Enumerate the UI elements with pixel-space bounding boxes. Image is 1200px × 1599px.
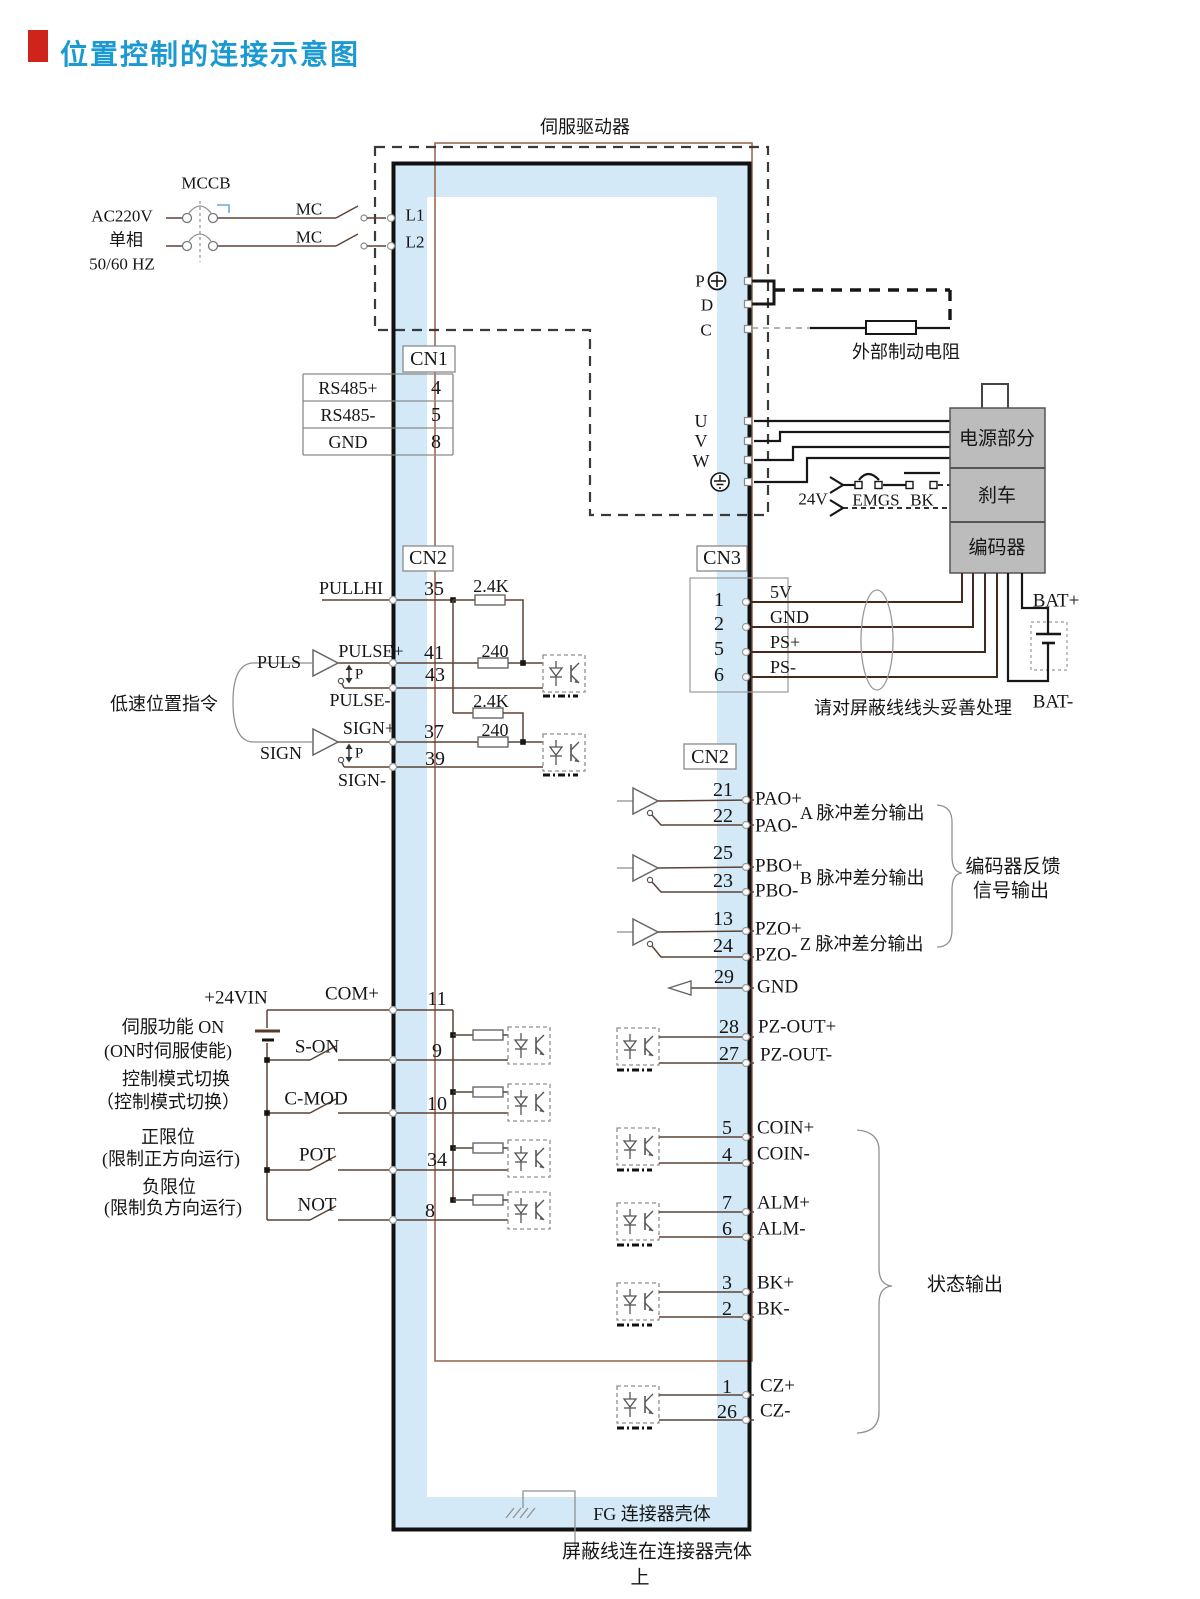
pin-3: 3 bbox=[722, 1273, 732, 1293]
signal-pzo-plus: PZO+ bbox=[755, 920, 802, 939]
label-bat-plus: BAT+ bbox=[1033, 592, 1080, 611]
signal-coin-minus: COIN- bbox=[757, 1145, 810, 1164]
page: 位置控制的连接示意图 bbox=[0, 0, 1200, 1599]
pin-9: 9 bbox=[432, 1041, 442, 1061]
resistor-2k4-1: 2.4K bbox=[473, 577, 509, 595]
signal-pullhi: PULLHI bbox=[319, 579, 383, 597]
signal-gnd: GND bbox=[757, 978, 798, 997]
cn3-pin-5: 5 bbox=[714, 639, 724, 659]
cn1-row-name: GND bbox=[329, 433, 368, 451]
pin-35: 35 bbox=[424, 579, 444, 599]
desc-a-output: A 脉冲差分输出 bbox=[800, 804, 925, 822]
label-p2: P bbox=[355, 747, 363, 762]
label-ext-resistor: 外部制动电阻 bbox=[852, 343, 960, 361]
cn1-row-pin: 4 bbox=[431, 378, 441, 398]
terminal-d: D bbox=[701, 297, 713, 314]
wiring-diagram-svg bbox=[0, 0, 1200, 1599]
din-desc-not-2: (限制负方向运行) bbox=[104, 1199, 242, 1217]
terminal-u: U bbox=[695, 412, 708, 430]
signal-c-mod: C-MOD bbox=[284, 1090, 347, 1109]
din-desc-son-1: 伺服功能 ON bbox=[122, 1018, 225, 1036]
desc-b-output: B 脉冲差分输出 bbox=[800, 869, 925, 887]
signal-pzo-minus: PZO- bbox=[755, 946, 797, 965]
cn1-label: CN1 bbox=[410, 349, 448, 369]
resistor-240-2: 240 bbox=[482, 721, 509, 739]
label-low-speed-cmd: 低速位置指令 bbox=[110, 695, 218, 713]
cn3-name-5v: 5V bbox=[770, 583, 792, 601]
din-desc-pot-2: (限制正方向运行) bbox=[102, 1150, 240, 1168]
signal-pao-minus: PAO- bbox=[755, 817, 798, 836]
label-emgs: EMGS bbox=[852, 492, 899, 509]
signal-pz-out-plus: PZ-OUT+ bbox=[758, 1018, 836, 1037]
signal-alm-minus: ALM- bbox=[757, 1220, 806, 1239]
pin-28: 28 bbox=[719, 1017, 739, 1037]
label-encoder-feedback-1: 编码器反馈 bbox=[965, 858, 1060, 877]
terminal-l2: L2 bbox=[406, 234, 425, 251]
pin-22: 22 bbox=[713, 806, 733, 826]
label-bk: BK bbox=[910, 492, 934, 509]
pin-37: 37 bbox=[424, 722, 444, 742]
label-freq: 50/60 HZ bbox=[89, 256, 155, 273]
pin-24: 24 bbox=[713, 936, 733, 956]
pin-4: 4 bbox=[722, 1145, 732, 1165]
cn3-pin-1: 1 bbox=[714, 590, 724, 610]
signal-sign-plus: SIGN+ bbox=[343, 719, 395, 737]
label-voltage: AC220V bbox=[91, 208, 152, 225]
terminal-v: V bbox=[695, 432, 708, 450]
signal-sign-minus: SIGN- bbox=[338, 771, 386, 789]
cn1-row-pin: 5 bbox=[431, 405, 441, 425]
terminal-l1: L1 bbox=[406, 207, 425, 224]
pin-13: 13 bbox=[713, 909, 733, 929]
signal-coin-plus: COIN+ bbox=[757, 1119, 814, 1138]
signal-sign: SIGN bbox=[260, 744, 302, 762]
signal-puls: PULS bbox=[257, 653, 301, 671]
pin-39: 39 bbox=[425, 749, 445, 769]
cn3-name-gnd: GND bbox=[770, 608, 809, 626]
signal-pbo-minus: PBO- bbox=[755, 882, 798, 901]
note-shield-shell-1: 屏蔽线连在连接器壳体 bbox=[562, 1543, 752, 1562]
label-p1: P bbox=[355, 668, 363, 683]
din-desc-pot-1: 正限位 bbox=[141, 1128, 195, 1146]
signal-cz-plus: CZ+ bbox=[760, 1377, 795, 1396]
label-mc2: MC bbox=[296, 229, 322, 246]
label-fg: FG 连接器壳体 bbox=[593, 1505, 711, 1523]
pin-2: 2 bbox=[722, 1299, 732, 1319]
pin-10: 10 bbox=[427, 1094, 447, 1114]
signal-bk-plus: BK+ bbox=[757, 1274, 794, 1293]
label-status-output: 状态输出 bbox=[927, 1276, 1003, 1295]
motor-encoder-section: 编码器 bbox=[968, 539, 1025, 558]
pin-11: 11 bbox=[427, 989, 446, 1009]
signal-bk-minus: BK- bbox=[757, 1300, 790, 1319]
din-desc-cmod-1: 控制模式切换 bbox=[122, 1070, 230, 1088]
cn2-in-label: CN2 bbox=[409, 548, 447, 568]
note-shield-shell-2: 上 bbox=[630, 1569, 649, 1588]
motor-power-section: 电源部分 bbox=[959, 430, 1035, 449]
cn3-label: CN3 bbox=[703, 548, 741, 568]
signal-pot: POT bbox=[299, 1146, 335, 1165]
terminal-p: P bbox=[695, 273, 704, 290]
pin-43: 43 bbox=[425, 665, 445, 685]
label-24vin: +24VIN bbox=[204, 989, 268, 1008]
signal-not: NOT bbox=[297, 1196, 336, 1215]
power-input-circuit bbox=[166, 201, 395, 262]
pin-26: 26 bbox=[717, 1402, 737, 1422]
motor-brake-section: 刹车 bbox=[978, 487, 1016, 506]
signal-pz-out-minus: PZ-OUT- bbox=[760, 1046, 832, 1065]
pin-41: 41 bbox=[424, 643, 444, 663]
pin-21: 21 bbox=[713, 780, 733, 800]
cn3-name-ps-minus: PS- bbox=[770, 658, 796, 676]
cn3-pin-6: 6 bbox=[714, 665, 724, 685]
pin-1: 1 bbox=[722, 1377, 732, 1397]
signal-cz-minus: CZ- bbox=[760, 1402, 791, 1421]
label-bat-minus: BAT- bbox=[1033, 693, 1073, 712]
note-shield-handling: 请对屏蔽线线头妥善处理 bbox=[814, 699, 1012, 717]
drive-label: 伺服驱动器 bbox=[540, 118, 630, 136]
signal-alm-plus: ALM+ bbox=[757, 1194, 810, 1213]
resistor-2k4-2: 2.4K bbox=[473, 692, 509, 710]
terminal-w: W bbox=[693, 452, 710, 470]
pin-8: 8 bbox=[425, 1201, 435, 1221]
pin-27: 27 bbox=[719, 1044, 739, 1064]
cn2-out-label: CN2 bbox=[691, 747, 729, 767]
signal-pbo-plus: PBO+ bbox=[755, 857, 803, 876]
signal-pulse-plus: PULSE+ bbox=[338, 642, 403, 660]
resistor-240-1: 240 bbox=[482, 642, 509, 660]
pin-29: 29 bbox=[714, 967, 734, 987]
pin-23: 23 bbox=[713, 871, 733, 891]
din-desc-not-1: 负限位 bbox=[142, 1178, 196, 1196]
pin-34: 34 bbox=[427, 1150, 447, 1170]
cn1-row-name: RS485- bbox=[320, 406, 375, 424]
label-phase: 单相 bbox=[109, 232, 143, 249]
cn3-name-ps-plus: PS+ bbox=[770, 633, 800, 651]
pin-7: 7 bbox=[722, 1193, 732, 1213]
desc-z-output: Z 脉冲差分输出 bbox=[800, 935, 924, 953]
terminal-c: C bbox=[700, 322, 711, 339]
signal-s-on: S-ON bbox=[295, 1038, 339, 1057]
pin-5: 5 bbox=[722, 1118, 732, 1138]
label-24v: 24V bbox=[798, 491, 827, 508]
pin-6: 6 bbox=[722, 1219, 732, 1239]
din-desc-son-2: (ON时伺服使能) bbox=[104, 1042, 232, 1060]
din-desc-cmod-2: （控制模式切换） bbox=[96, 1093, 240, 1111]
signal-pao-plus: PAO+ bbox=[755, 790, 802, 809]
label-mc1: MC bbox=[296, 201, 322, 218]
label-mccb: MCCB bbox=[181, 175, 230, 192]
cn1-row-pin: 8 bbox=[431, 432, 441, 452]
cn3-pin-2: 2 bbox=[714, 614, 724, 634]
label-encoder-feedback-2: 信号输出 bbox=[973, 882, 1049, 901]
pin-25: 25 bbox=[713, 843, 733, 863]
signal-pulse-minus: PULSE- bbox=[329, 691, 390, 709]
signal-com-plus: COM+ bbox=[325, 985, 379, 1004]
cn1-row-name: RS485+ bbox=[318, 379, 377, 397]
